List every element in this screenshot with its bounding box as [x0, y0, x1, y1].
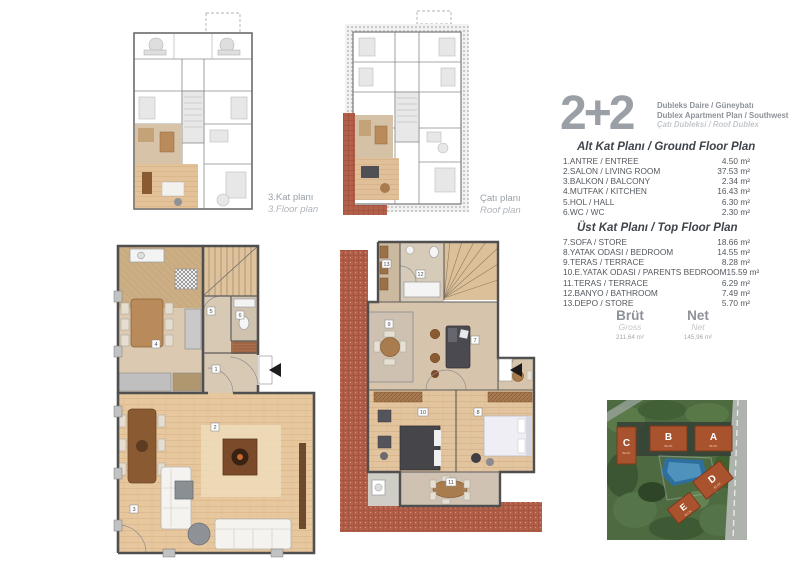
apartment-subtitle: Dubleks Daire / Güneybatı Dublex Apartme…: [657, 101, 788, 130]
room-row: 5.HOL / HALL6.30 m²: [563, 197, 750, 207]
svg-text:B: B: [665, 432, 672, 443]
entry-hall-floor: [203, 353, 258, 393]
room-name: 12.BANYO / BATHROOM: [563, 288, 658, 298]
kitchen-counter: [185, 309, 201, 349]
room-row: 9.TERAS / TERRACE8.28 m²: [563, 257, 750, 267]
block-a: A BLOK: [695, 426, 732, 451]
entrance-marker: [259, 356, 281, 384]
kitchen-dining-table: [121, 299, 173, 347]
room-area: 16.43 m²: [717, 186, 750, 196]
room-name: 2.SALON / LIVING ROOM: [563, 166, 660, 176]
sofa-horizontal: [215, 519, 291, 549]
room-row: 6.WC / WC2.30 m²: [563, 207, 750, 217]
caption-tr: 3.Kat planı: [268, 192, 318, 204]
svg-text:4: 4: [154, 342, 157, 348]
living-dining-table: [119, 409, 165, 483]
roof-highlighted-unit: [355, 115, 399, 200]
svg-text:BLOK: BLOK: [709, 444, 717, 448]
kitchen-sink: [130, 249, 164, 262]
room-row: 3.BALKON / BALCONY2.34 m²: [563, 176, 750, 186]
room-row: 4.MUTFAK / KITCHEN16.43 m²: [563, 186, 750, 196]
room-row: 2.SALON / LIVING ROOM37.53 m²: [563, 166, 750, 176]
gross-value: 211,64 m²: [597, 334, 663, 341]
caption-en: 3.Floor plan: [268, 204, 318, 216]
room-name: 6.WC / WC: [563, 207, 604, 217]
third-floor-caption: 3.Kat planı 3.Floor plan: [268, 192, 318, 215]
dashed-extension: [417, 11, 451, 24]
caption-tr: Çatı planı: [480, 193, 521, 205]
floorplan-brochure-page: 3.Kat planı 3.Floor plan: [0, 0, 800, 565]
room-area: 8.28 m²: [722, 257, 750, 267]
room-row: 8.YATAK ODASI / BEDROOM14.55 m²: [563, 247, 750, 257]
room-name: 9.TERAS / TERRACE: [563, 257, 644, 267]
room-name: 11.TERAS / TERRACE: [563, 278, 648, 288]
svg-text:1: 1: [214, 367, 217, 373]
svg-text:12: 12: [417, 272, 423, 278]
room-name: 10.E.YATAK ODASI / PARENTS BEDROOM: [563, 267, 727, 277]
stair-floor: [444, 242, 498, 300]
site-aerial-plan: C BLOK B BLOK A BLOK D BLOK E BLOK: [607, 400, 747, 540]
svg-text:7: 7: [473, 338, 476, 344]
room-row: 7.SOFA / STORE18.66 m²: [563, 237, 750, 247]
caption-en: Roof plan: [480, 205, 521, 217]
gross-sublabel: Gross: [597, 323, 663, 332]
room-row: 13.DEPO / STORE5.70 m²: [563, 298, 750, 308]
stair-core: [182, 91, 204, 143]
block-b: B BLOK: [650, 426, 687, 451]
room-name: 3.BALKON / BALCONY: [563, 176, 650, 186]
svg-text:5: 5: [209, 309, 212, 315]
apartment-type-label: 2+2: [560, 92, 632, 136]
room-name: 13.DEPO / STORE: [563, 298, 633, 308]
room-name: 7.SOFA / STORE: [563, 237, 627, 247]
room-area: 6.29 m²: [722, 278, 750, 288]
room-row: 10.E.YATAK ODASI / PARENTS BEDROOM15.59 …: [563, 267, 750, 277]
ground-floor-room-list: 1.ANTRE / ENTREE4.50 m² 2.SALON / LIVING…: [563, 156, 750, 217]
roof-caption: Çatı planı Roof plan: [480, 193, 521, 216]
net-value: 145,96 m²: [665, 334, 731, 341]
room-area: 5.70 m²: [722, 298, 750, 308]
svg-text:C: C: [623, 438, 630, 449]
roof-stair-core: [395, 92, 419, 142]
kitchen-cabinets: [119, 373, 201, 391]
third-floor-key-plan: [126, 12, 260, 214]
top-floor-list-title: Üst Kat Planı / Top Floor Plan: [577, 222, 738, 234]
svg-text:A: A: [710, 432, 717, 443]
room-area: 7.49 m²: [722, 288, 750, 298]
room-area: 6.30 m²: [722, 197, 750, 207]
svg-text:6: 6: [238, 313, 241, 319]
svg-text:13: 13: [383, 262, 389, 268]
gross-label: Brüt: [597, 309, 663, 323]
hall5-floor: [203, 296, 231, 353]
room-area: 15.59 m²: [727, 267, 760, 277]
kitchen-tile-area: [175, 269, 197, 289]
net-area-block: Net Net 145,96 m²: [665, 309, 731, 341]
room-area: 2.30 m²: [722, 207, 750, 217]
svg-text:11: 11: [448, 480, 454, 486]
tv-console: [299, 443, 306, 529]
top-floor-room-list: 7.SOFA / STORE18.66 m² 8.YATAK ODASI / B…: [563, 237, 750, 308]
top-floor-plan: 13 12 7 9 10 8 11: [338, 240, 565, 540]
room-area: 2.34 m²: [722, 176, 750, 186]
room-name: 1.ANTRE / ENTREE: [563, 156, 639, 166]
fireplace: [223, 439, 257, 475]
dashed-extension-lines: [206, 13, 240, 33]
ground-floor-list-title: Alt Kat Planı / Ground Floor Plan: [577, 141, 755, 153]
net-sublabel: Net: [665, 323, 731, 332]
net-label: Net: [665, 309, 731, 323]
room-name: 4.MUTFAK / KITCHEN: [563, 186, 647, 196]
washer: [372, 480, 385, 495]
room-row: 1.ANTRE / ENTREE4.50 m²: [563, 156, 750, 166]
svg-text:3: 3: [132, 507, 135, 513]
block-c: C BLOK: [617, 427, 636, 464]
room-area: 4.50 m²: [722, 156, 750, 166]
room-area: 14.55 m²: [717, 247, 750, 257]
svg-text:9: 9: [387, 322, 390, 328]
room-row: 11.TERAS / TERRACE6.29 m²: [563, 278, 750, 288]
room-area: 37.53 m²: [717, 166, 750, 176]
balcony-round-table: [188, 523, 210, 545]
room-row: 12.BANYO / BATHROOM7.49 m²: [563, 288, 750, 298]
subtitle-line3: Çatı Dubleksi / Roof Dublex: [657, 120, 788, 130]
room-name: 8.YATAK ODASI / BEDROOM: [563, 247, 673, 257]
subtitle-line2: Dublex Apartment Plan / Southwest: [657, 111, 788, 121]
side-table: [175, 481, 193, 499]
subtitle-line1: Dubleks Daire / Güneybatı: [657, 101, 788, 111]
gross-area-block: Brüt Gross 211,64 m²: [597, 309, 663, 341]
svg-text:BLOK: BLOK: [664, 444, 672, 448]
room-area: 18.66 m²: [717, 237, 750, 247]
room-name: 5.HOL / HALL: [563, 197, 614, 207]
svg-text:10: 10: [420, 410, 426, 416]
ground-floor-plan: 4 5 6 1 2 3: [103, 243, 321, 558]
roof-key-plan: [343, 10, 471, 215]
svg-text:BLOK: BLOK: [622, 451, 630, 455]
svg-text:8: 8: [476, 410, 479, 416]
svg-text:2: 2: [213, 425, 216, 431]
